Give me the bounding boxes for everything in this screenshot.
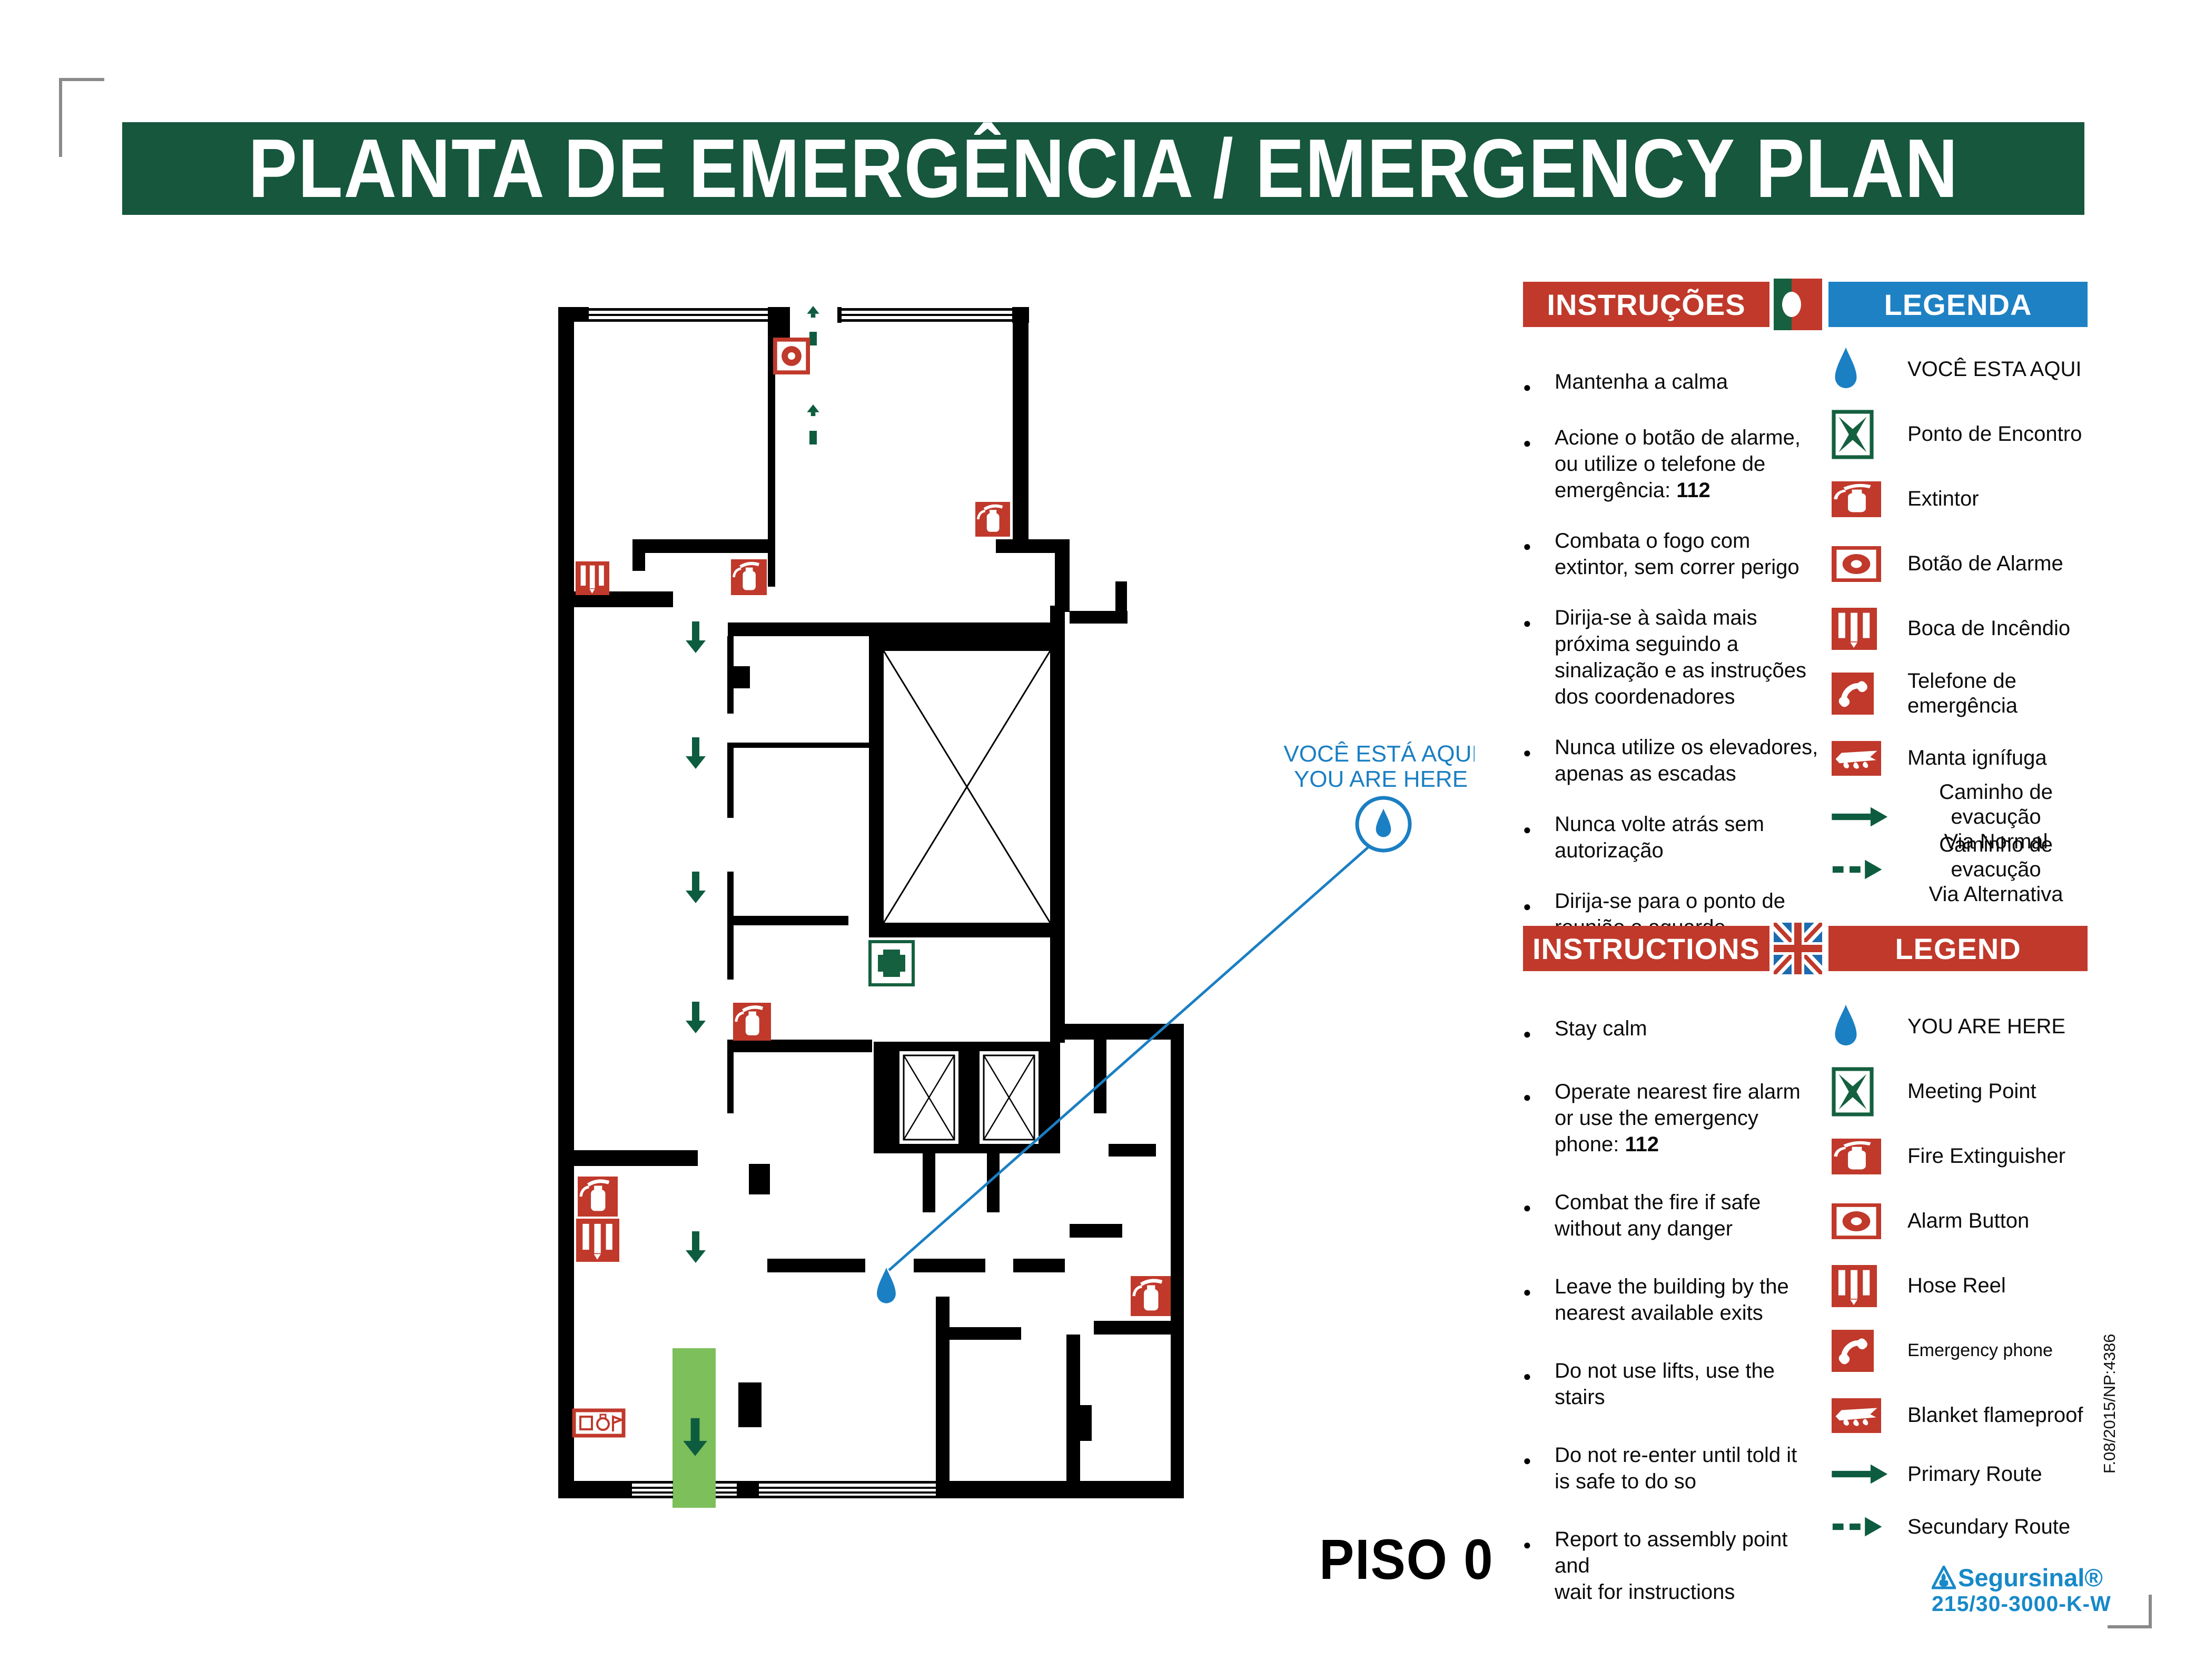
instruction-item: ●Report to assembly point andwait for in… (1523, 1526, 1826, 1605)
portugal-flag-icon (1774, 279, 1822, 330)
legend-label: Boca de Incêndio (1907, 616, 2070, 641)
meeting-point-icon (1832, 410, 1894, 459)
hose-reel-icon (1832, 608, 1894, 650)
bullet-icon: ● (1523, 1079, 1555, 1110)
legend-label: Extintor (1907, 487, 1979, 511)
elevator-shafts-small (874, 1042, 1060, 1153)
instruction-item: ●Acione o botão de alarme,ou utilize o t… (1523, 424, 1826, 503)
legend-label: Botão de Alarme (1907, 551, 2063, 576)
evacuation-arrow-down-icon (686, 1002, 706, 1033)
bullet-icon: ● (1523, 1273, 1555, 1305)
emergency-phone-icon (1832, 673, 1894, 715)
bullet-icon: ● (1523, 1189, 1555, 1221)
instruction-item: ●Do not use lifts, use thestairs (1523, 1358, 1826, 1410)
alarm-button-icon (1832, 1203, 1894, 1239)
fire-blanket-icon (1832, 1398, 1894, 1433)
instruction-text: Stay calm (1555, 1015, 1647, 1042)
fire-extinguisher-icon (1131, 1276, 1171, 1316)
pt-instructions-header: INSTRUÇÕES (1523, 282, 1769, 327)
bullet-icon: ● (1523, 528, 1555, 559)
instruction-item: ●Do not re-enter until told itis safe to… (1523, 1442, 1826, 1495)
legend-item: Boca de Incêndio (1832, 596, 2127, 661)
pt-legend-list: VOCÊ ESTA AQUIPonto de EncontroExtintorB… (1832, 337, 2127, 896)
instruction-text: Mantenha a calma (1555, 369, 1728, 395)
legend-item: Meeting Point (1832, 1059, 2137, 1124)
legend-label: Manta ignífuga (1907, 746, 2047, 770)
elevator-shaft-large (869, 636, 1065, 937)
pt-instructions-list: ●Mantenha a calma●Acione o botão de alar… (1523, 369, 1826, 991)
you-are-here-marker (877, 1268, 896, 1303)
meeting-point-icon (1832, 1067, 1894, 1116)
legend-label: Primary Route (1907, 1462, 2042, 1487)
emergency-plan-poster: PLANTA DE EMERGÊNCIA / EMERGENCY PLAN (0, 0, 2205, 1680)
pt-legend-header: LEGENDA (1828, 282, 2088, 327)
evacuation-arrow-down-icon (686, 1231, 706, 1263)
you-are-here-drop-icon (1832, 343, 1894, 397)
pt-legend-title: LEGENDA (1884, 288, 2032, 322)
legend-item: Secundary Route (1832, 1500, 2137, 1553)
legend-item: YOU ARE HERE (1832, 994, 2137, 1059)
fire-extinguisher-icon (731, 559, 767, 595)
legend-item: VOCÊ ESTA AQUI (1832, 337, 2127, 402)
instruction-text: Nunca utilize os elevadores,apenas as es… (1555, 734, 1818, 787)
legend-item: Ponto de Encontro (1832, 402, 2127, 467)
alarm-button-icon (773, 338, 810, 374)
legend-label: VOCÊ ESTA AQUI (1907, 357, 2081, 382)
instruction-text: Nunca volte atrás semautorização (1555, 811, 1764, 864)
instruction-text: Report to assembly point andwait for ins… (1555, 1526, 1826, 1605)
instruction-text: Leave the building by thenearest availab… (1555, 1273, 1789, 1326)
instruction-item: ●Nunca volte atrás semautorização (1523, 811, 1826, 864)
legend-label: Ponto de Encontro (1907, 422, 2082, 447)
hose-reel-icon (576, 561, 609, 595)
route-solid-arrow-icon (1832, 805, 1894, 829)
you-are-here-label-en: YOU ARE HERE (1294, 766, 1468, 792)
legend-item: Alarm Button (1832, 1189, 2137, 1253)
bullet-icon: ● (1523, 1358, 1555, 1389)
legend-item: Hose Reel (1832, 1253, 2137, 1318)
legend-label: Caminho de evacuçãoVia Alternativa (1896, 833, 2096, 907)
you-are-here-label-pt: VOCÊ ESTÁ AQUI (1283, 741, 1475, 767)
en-legend-list: YOU ARE HEREMeeting PointFire Extinguish… (1832, 994, 2137, 1553)
document-side-code: F.08/2015/NP:4386 (2100, 1334, 2119, 1474)
instruction-item: ●Operate nearest fire alarmor use the em… (1523, 1079, 1826, 1158)
en-instructions-list: ●Stay calm●Operate nearest fire alarmor … (1523, 1015, 1826, 1637)
en-instructions-header: INSTRUCTIONS (1523, 926, 1769, 971)
legend-label: YOU ARE HERE (1907, 1014, 2065, 1039)
en-legend-header: LEGEND (1828, 926, 2088, 971)
legend-label: Hose Reel (1907, 1273, 2006, 1298)
bullet-icon: ● (1523, 369, 1555, 400)
cropmark-topleft-v (59, 78, 62, 157)
bullet-icon: ● (1523, 1526, 1555, 1558)
bullet-icon: ● (1523, 1015, 1555, 1047)
instruction-item: ●Leave the building by thenearest availa… (1523, 1273, 1826, 1326)
legend-item: Blanket flameproof (1832, 1383, 2137, 1448)
legend-item: Primary Route (1832, 1448, 2137, 1500)
instruction-text: Acione o botão de alarme,ou utilize o te… (1555, 424, 1801, 503)
bullet-icon: ● (1523, 811, 1555, 843)
brand-flame-icon (1932, 1566, 1956, 1590)
fire-extinguisher-icon (578, 1177, 618, 1217)
page-title: PLANTA DE EMERGÊNCIA / EMERGENCY PLAN (248, 121, 1959, 216)
hose-reel-icon (576, 1219, 619, 1262)
legend-label: Telefone de emergência (1907, 669, 2127, 718)
brand-code: 215/30-3000-K-W (1932, 1592, 2111, 1616)
instruction-item: ●Stay calm (1523, 1015, 1826, 1047)
fire-extinguisher-icon (975, 502, 1010, 537)
legend-label: Alarm Button (1907, 1209, 2029, 1233)
bullet-icon: ● (1523, 888, 1555, 920)
alarm-button-icon (1832, 546, 1894, 582)
window-band-top-left (589, 308, 768, 322)
floor-plan: VOCÊ ESTÁ AQUI YOU ARE HERE (548, 284, 1475, 1559)
fire-blanket-icon (1832, 741, 1894, 776)
uk-flag-icon (1774, 923, 1822, 974)
window-band-top-right (841, 308, 1012, 322)
legend-item: Telefone de emergência (1832, 661, 2127, 726)
hose-reel-icon (1832, 1265, 1894, 1307)
instruction-item: ●Dirija-se à saìda maispróxima seguindo … (1523, 605, 1826, 710)
legend-label: Blanket flameproof (1907, 1403, 2083, 1428)
route-solid-arrow-icon (1832, 1462, 1894, 1486)
instruction-text: Combat the fire if safewithout any dange… (1555, 1189, 1761, 1242)
cropmark-bottomright-v (2149, 1595, 2152, 1628)
bullet-icon: ● (1523, 605, 1555, 636)
brand-logo: Segursinal® (1932, 1563, 2103, 1592)
instruction-text: Do not re-enter until told itis safe to … (1555, 1442, 1797, 1495)
bullet-icon: ● (1523, 424, 1555, 456)
instruction-item: ●Combat the fire if safewithout any dang… (1523, 1189, 1826, 1242)
fire-extinguisher-icon (1832, 481, 1894, 517)
cropmark-bottomright-h (2108, 1625, 2152, 1628)
instruction-text: Operate nearest fire alarmor use the eme… (1555, 1079, 1801, 1158)
legend-label: Fire Extinguisher (1907, 1144, 2065, 1169)
legend-item: Fire Extinguisher (1832, 1124, 2137, 1189)
instruction-item: ●Combata o fogo comextintor, sem correr … (1523, 528, 1826, 580)
cropmark-topleft-h (59, 78, 104, 81)
legend-item: Emergency phone (1832, 1318, 2137, 1383)
bullet-icon: ● (1523, 1442, 1555, 1474)
evacuation-arrows (683, 306, 819, 1456)
instruction-item: ●Nunca utilize os elevadores,apenas as e… (1523, 734, 1826, 787)
evacuation-arrow-down-icon (686, 737, 706, 769)
legend-item: Botão de Alarme (1832, 531, 2127, 596)
you-are-here-drop-icon (1832, 1000, 1894, 1054)
instruction-text: Dirija-se à saìda maispróxima seguindo a… (1555, 605, 1806, 710)
brand-name: Segursinal® (1958, 1563, 2103, 1592)
pt-instructions-title: INSTRUÇÕES (1547, 288, 1745, 322)
en-instructions-title: INSTRUCTIONS (1532, 932, 1760, 966)
route-dashed-arrow-icon (1832, 857, 1894, 882)
legend-item: Caminho de evacuçãoVia Alternativa (1832, 843, 2127, 896)
bullet-icon: ● (1523, 734, 1555, 766)
legend-item: Extintor (1832, 467, 2127, 531)
evacuation-arrow-down-icon (686, 872, 706, 903)
legend-label: Emergency phone (1907, 1338, 2053, 1363)
instruction-item: ●Mantenha a calma (1523, 369, 1826, 400)
instruction-text: Combata o fogo comextintor, sem correr p… (1555, 528, 1799, 580)
instruction-text: Do not use lifts, use thestairs (1555, 1358, 1775, 1410)
first-aid-icon (870, 942, 913, 985)
title-bar: PLANTA DE EMERGÊNCIA / EMERGENCY PLAN (122, 122, 2084, 215)
evacuation-arrow-up-icon (807, 306, 819, 318)
legend-label: Meeting Point (1907, 1079, 2036, 1104)
emergency-phone-icon (1832, 1330, 1894, 1372)
evacuation-arrow-up-icon (807, 404, 819, 416)
legend-label: Secundary Route (1907, 1515, 2070, 1539)
evacuation-arrow-down-icon (686, 621, 706, 653)
fire-extinguisher-icon (733, 1003, 771, 1041)
en-legend-title: LEGEND (1895, 932, 2021, 966)
route-dashed-arrow-icon (1832, 1515, 1894, 1539)
fire-extinguisher-icon (1832, 1139, 1894, 1174)
floor-label: PISO 0 (1319, 1526, 1494, 1592)
plan-location-sign (574, 1410, 624, 1436)
